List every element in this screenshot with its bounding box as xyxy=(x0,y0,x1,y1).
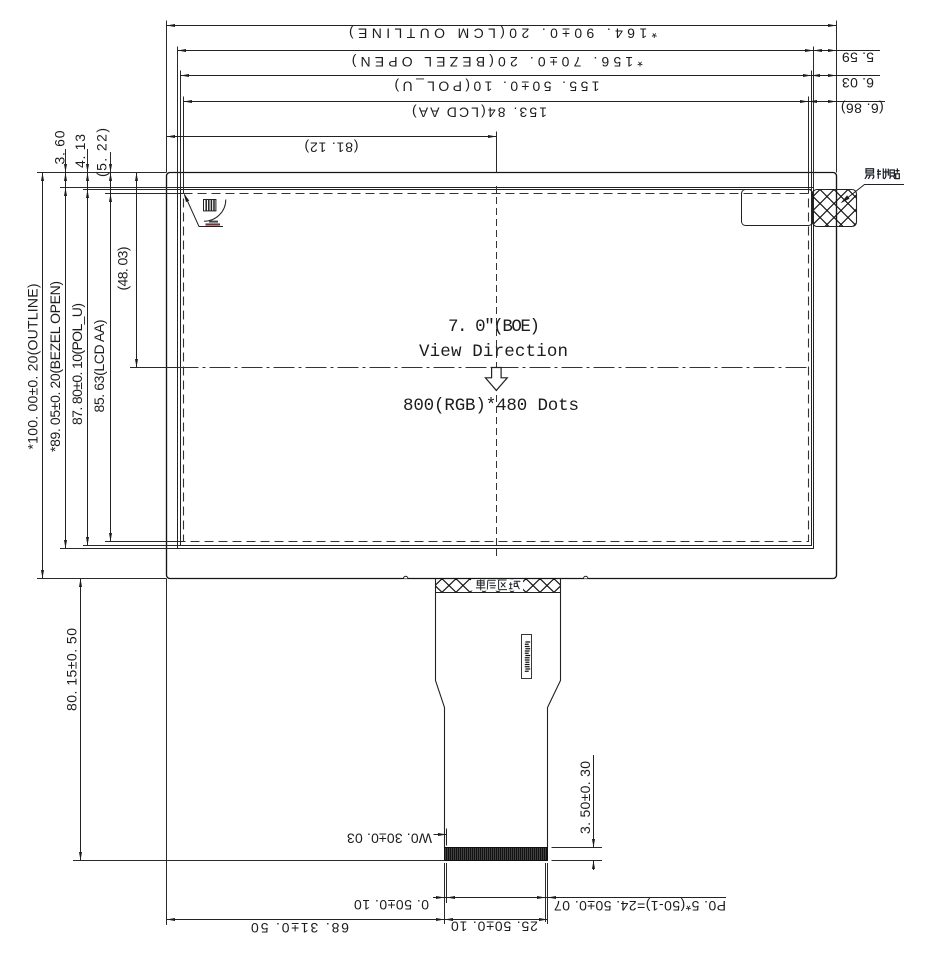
svg-text:153. 84(LCD AA): 153. 84(LCD AA) xyxy=(411,105,547,121)
svg-text:155. 50±0. 10(POL_U): 155. 50±0. 10(POL_U) xyxy=(393,79,600,95)
svg-text:*156. 70±0. 20(BEZEL OPEN): *156. 70±0. 20(BEZEL OPEN) xyxy=(349,54,643,70)
svg-text:W0. 30±0. 03: W0. 30±0. 03 xyxy=(347,831,432,847)
svg-text:7. 0″(BOE): 7. 0″(BOE) xyxy=(448,317,540,337)
svg-text:(81. 12): (81. 12) xyxy=(305,140,359,156)
svg-text:View Direction: View Direction xyxy=(419,342,568,362)
svg-text:0. 50±0. 10: 0. 50±0. 10 xyxy=(354,897,429,913)
svg-text:3. 60: 3. 60 xyxy=(52,130,68,164)
svg-text:*89. 05±0. 20(BEZEL OPEN): *89. 05±0. 20(BEZEL OPEN) xyxy=(47,281,63,452)
svg-text:(6. 86): (6. 86) xyxy=(841,101,884,117)
svg-text:4. 13: 4. 13 xyxy=(72,134,88,168)
svg-text:5. 59: 5. 59 xyxy=(842,50,874,66)
svg-text:80. 15±0. 50: 80. 15±0. 50 xyxy=(63,628,79,711)
svg-text:85. 63(LCD AA): 85. 63(LCD AA) xyxy=(91,320,107,413)
svg-text:25. 50±0. 10: 25. 50±0. 10 xyxy=(451,919,538,935)
svg-text:(48. 03): (48. 03) xyxy=(115,247,131,291)
svg-text:87. 80±0. 10(POL_U): 87. 80±0. 10(POL_U) xyxy=(69,303,85,425)
svg-text:*100. 00±0. 20(OUTLINE): *100. 00±0. 20(OUTLINE) xyxy=(25,284,41,450)
svg-text:6. 03: 6. 03 xyxy=(842,75,874,91)
svg-text:3. 50±0. 30: 3. 50±0. 30 xyxy=(577,761,593,834)
svg-text:*164. 90±0. 20(LCM OUTLINE): *164. 90±0. 20(LCM OUTLINE) xyxy=(346,26,657,42)
svg-text:P0. 5*(50-1)=24. 50±0. 07: P0. 5*(50-1)=24. 50±0. 07 xyxy=(554,898,726,914)
svg-text:800(RGB)*480 Dots: 800(RGB)*480 Dots xyxy=(403,396,579,416)
svg-text:68. 31±0. 50: 68. 31±0. 50 xyxy=(251,920,349,936)
